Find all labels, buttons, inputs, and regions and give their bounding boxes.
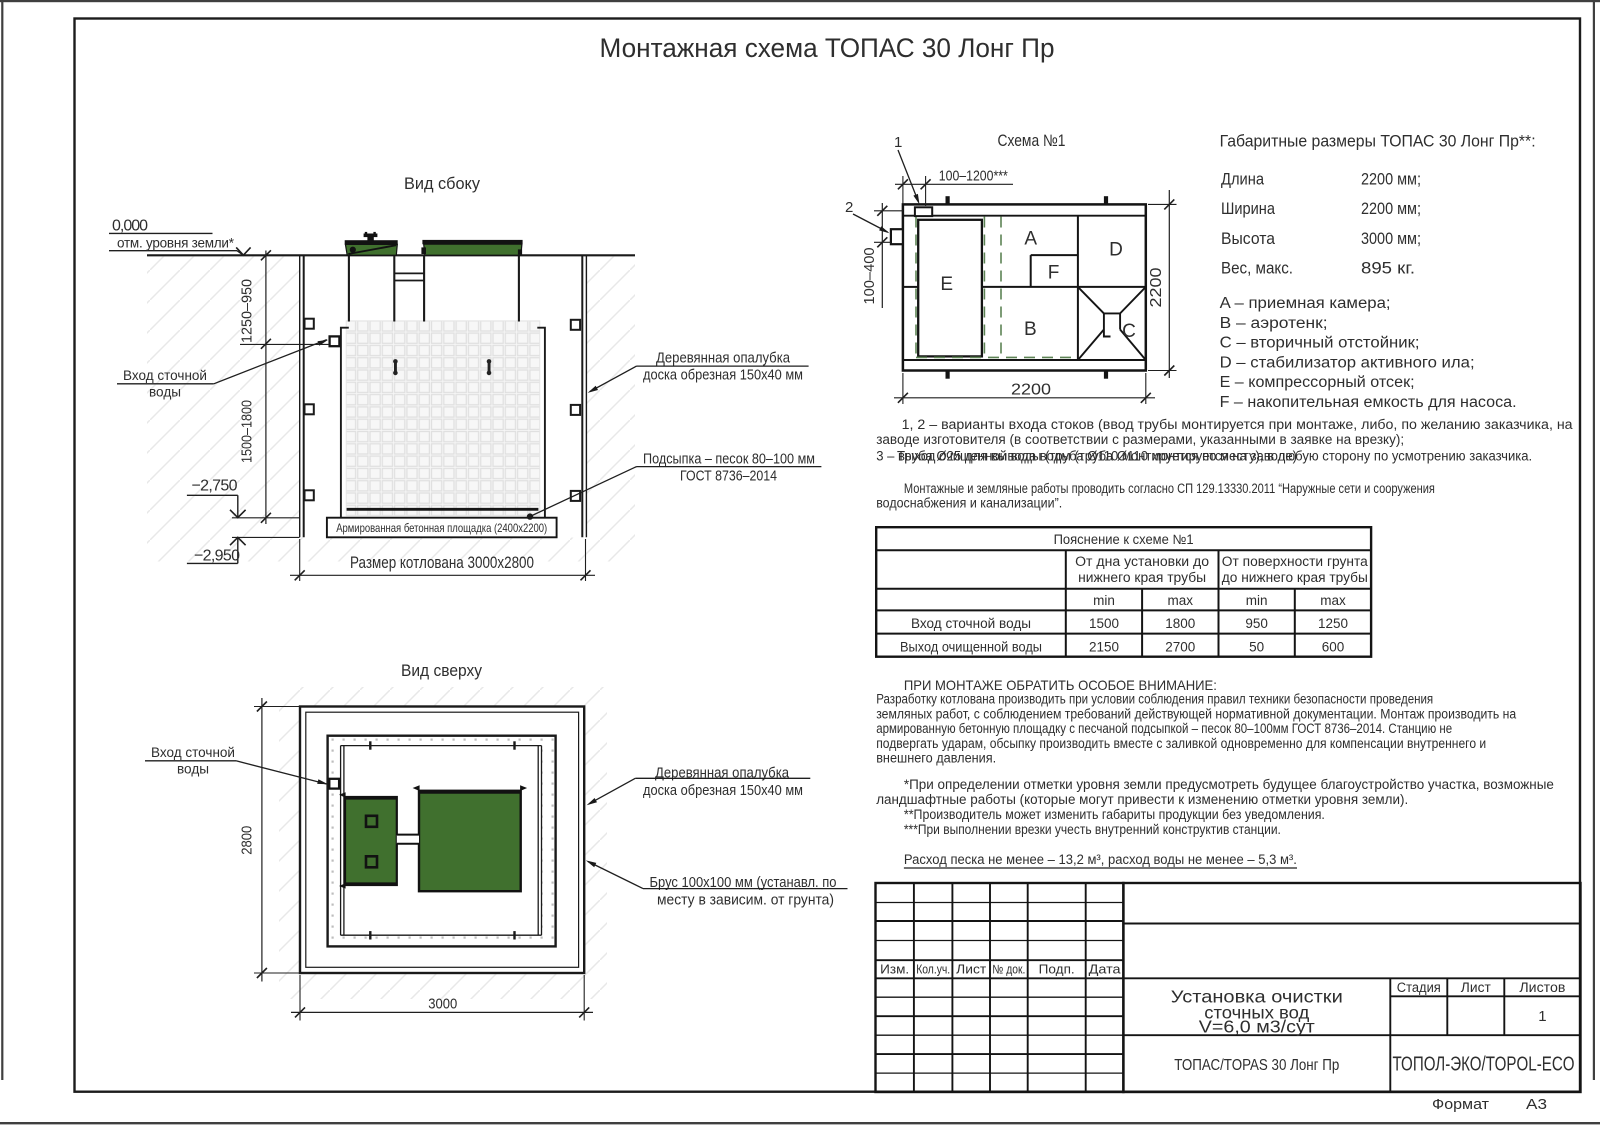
svg-text:3000 мм;: 3000 мм; xyxy=(1361,230,1421,248)
svg-text:1: 1 xyxy=(894,134,902,151)
svg-text:ГОСТ 8736–2014: ГОСТ 8736–2014 xyxy=(680,469,777,485)
svg-text:1, 2 – варианты входа стоков: 1, 2 – варианты входа стоков (ввод трубы… xyxy=(902,417,1574,432)
svg-text:Кол.уч.: Кол.уч. xyxy=(916,963,950,977)
svg-text:0,000: 0,000 xyxy=(112,218,148,235)
svg-text:1: 1 xyxy=(1538,1008,1546,1025)
svg-text:E – компрессорный отсек;: E – компрессорный отсек; xyxy=(1220,374,1415,391)
svg-text:50: 50 xyxy=(1249,640,1264,655)
svg-text:ТОПАС/TOPAS 30 Лонг Пр: ТОПАС/TOPAS 30 Лонг Пр xyxy=(1174,1057,1339,1074)
svg-text:доска обрезная 150х40 мм: доска обрезная 150х40 мм xyxy=(643,783,803,799)
svg-text:Высота: Высота xyxy=(1221,230,1276,248)
svg-text:C: C xyxy=(1122,321,1136,342)
svg-text:1500–1800: 1500–1800 xyxy=(240,400,256,463)
svg-text:заводе изготовителя (в соответ: заводе изготовителя (в соответствии с ра… xyxy=(876,432,1404,447)
svg-text:B: B xyxy=(1024,319,1037,340)
svg-text:Лист: Лист xyxy=(1461,980,1491,995)
svg-text:Разработку котлована производи: Разработку котлована производить при усл… xyxy=(876,692,1433,707)
svg-text:1250–950: 1250–950 xyxy=(240,279,256,343)
svg-text:Лист: Лист xyxy=(956,963,986,977)
svg-text:A – приемная камера;: A – приемная камера; xyxy=(1220,295,1391,312)
svg-text:2200: 2200 xyxy=(1148,267,1165,307)
svg-text:Вид сбоку: Вид сбоку xyxy=(404,175,481,193)
svg-text:A: A xyxy=(1024,229,1037,250)
svg-text:2200 мм;: 2200 мм; xyxy=(1361,171,1421,189)
svg-text:min: min xyxy=(1093,593,1115,608)
svg-text:Изм.: Изм. xyxy=(880,963,909,977)
svg-text:Листов: Листов xyxy=(1519,980,1565,995)
svg-text:−2,950: −2,950 xyxy=(194,548,240,565)
svg-text:Длина: Длина xyxy=(1221,171,1265,189)
svg-text:2150: 2150 xyxy=(1089,640,1119,655)
svg-text:Ширина: Ширина xyxy=(1221,200,1276,218)
svg-text:Вход сточной воды: Вход сточной воды xyxy=(911,616,1031,631)
svg-text:Схема №1: Схема №1 xyxy=(998,132,1066,150)
svg-text:1500: 1500 xyxy=(1089,616,1119,631)
svg-text:Армированная бетонная площадка: Армированная бетонная площадка (2400х220… xyxy=(336,521,547,535)
svg-text:2700: 2700 xyxy=(1165,640,1195,655)
svg-text:max: max xyxy=(1168,593,1194,608)
svg-text:950: 950 xyxy=(1245,616,1268,631)
svg-text:F: F xyxy=(1048,263,1060,284)
svg-text:Дата: Дата xyxy=(1089,963,1121,977)
svg-text:D: D xyxy=(1109,240,1123,261)
svg-text:min: min xyxy=(1246,593,1268,608)
svg-text:***При выполнении врезки учест: ***При выполнении врезки учесть внутренн… xyxy=(904,822,1281,837)
svg-text:водоснабжения и канализации”.: водоснабжения и канализации”. xyxy=(876,496,1062,511)
svg-text:Вес, макс.: Вес, макс. xyxy=(1221,260,1293,278)
svg-text:2200 мм;: 2200 мм; xyxy=(1361,200,1421,218)
svg-text:ландшафтные работы (которые мо: ландшафтные работы (которые могут привес… xyxy=(876,792,1408,807)
svg-text:*При определении отметки уровн: *При определении отметки уровня земли пр… xyxy=(904,777,1554,792)
svg-text:Деревянная опалубка: Деревянная опалубка xyxy=(656,351,791,367)
svg-text:Расход песка не менее – 13,2 м: Расход песка не менее – 13,2 м³, расход … xyxy=(904,852,1297,867)
svg-text:Стадия: Стадия xyxy=(1397,980,1441,995)
svg-text:1800: 1800 xyxy=(1165,616,1195,631)
svg-text:Вид сверху: Вид сверху xyxy=(401,662,483,680)
svg-text:2800: 2800 xyxy=(239,826,256,855)
svg-text:ТОПОЛ-ЭКО/TOPOL-ECO: ТОПОЛ-ЭКО/TOPOL-ECO xyxy=(1393,1054,1575,1076)
svg-text:Вход сточной: Вход сточной xyxy=(123,368,207,383)
svg-text:**Производитель может изменить: **Производитель может изменить габариты … xyxy=(904,807,1325,822)
svg-text:100–400: 100–400 xyxy=(861,248,878,305)
svg-text:E: E xyxy=(940,274,953,295)
svg-text:Монтажные и земляные работы пр: Монтажные и земляные работы проводить со… xyxy=(904,481,1435,496)
svg-text:1250: 1250 xyxy=(1318,616,1348,631)
svg-text:Размер котлована 3000х2800: Размер котлована 3000х2800 xyxy=(350,554,534,572)
svg-text:100–1200***: 100–1200*** xyxy=(939,168,1008,185)
svg-text:нижнего края трубы: нижнего края трубы xyxy=(1078,570,1206,585)
svg-text:B – аэротенк;: B – аэротенк; xyxy=(1220,315,1328,332)
svg-text:600: 600 xyxy=(1322,640,1345,655)
svg-text:Монтажная схема ТОПАС 30 Лонг: Монтажная схема ТОПАС 30 Лонг Пр xyxy=(600,33,1055,63)
svg-text:до нижнего края трубы: до нижнего края трубы xyxy=(1222,570,1368,585)
svg-text:От поверхности грунта: От поверхности грунта xyxy=(1222,554,1368,569)
svg-text:3 – выход очищенной воды (труб: 3 – выход очищенной воды (труба Ø110 мон… xyxy=(876,449,1532,464)
svg-text:max: max xyxy=(1320,593,1346,608)
svg-text:F – накопительная емкость для: F – накопительная емкость для насоса. xyxy=(1220,394,1517,411)
svg-text:Подсыпка – песок 80–100 мм: Подсыпка – песок 80–100 мм xyxy=(643,452,815,468)
svg-text:2200: 2200 xyxy=(1011,382,1051,399)
svg-text:D – стабилизатор активного ила: D – стабилизатор активного ила; xyxy=(1220,354,1475,371)
svg-text:От дна установки до: От дна установки до xyxy=(1075,554,1209,569)
svg-text:месту в зависим. от грунта): месту в зависим. от грунта) xyxy=(657,893,834,909)
svg-text:2: 2 xyxy=(845,199,853,216)
svg-text:Деревянная опалубка: Деревянная опалубка xyxy=(655,766,790,782)
svg-text:Пояснение к схеме №1: Пояснение к схеме №1 xyxy=(1054,532,1194,547)
svg-text:А3: А3 xyxy=(1526,1097,1547,1113)
svg-text:внешнего давления.: внешнего давления. xyxy=(876,751,996,766)
svg-text:доска обрезная 150х40 мм: доска обрезная 150х40 мм xyxy=(643,368,803,384)
svg-text:воды: воды xyxy=(149,385,181,400)
svg-text:воды: воды xyxy=(177,762,209,777)
svg-text:Габаритные размеры ТОПАС 30 Ло: Габаритные размеры ТОПАС 30 Лонг Пр**: xyxy=(1220,132,1536,151)
svg-text:3000: 3000 xyxy=(428,995,457,1012)
svg-text:армированную бетонную площадку: армированную бетонную площадку с песчано… xyxy=(876,721,1452,736)
svg-text:C – вторичный отстойник;: C – вторичный отстойник; xyxy=(1220,335,1420,352)
svg-text:895 кг.: 895 кг. xyxy=(1361,260,1415,278)
svg-text:V=6,0 м3/сут: V=6,0 м3/сут xyxy=(1199,1017,1315,1037)
svg-text:Подп.: Подп. xyxy=(1039,963,1075,977)
svg-text:Формат: Формат xyxy=(1432,1097,1489,1113)
svg-text:Выход очищенной воды: Выход очищенной воды xyxy=(900,640,1042,655)
svg-text:Вход сточной: Вход сточной xyxy=(151,745,235,760)
svg-text:земляных работ, с соблюдением: земляных работ, с соблюдением требований… xyxy=(876,706,1516,721)
svg-text:№ док.: № док. xyxy=(992,963,1025,977)
svg-text:−2,750: −2,750 xyxy=(192,478,238,495)
svg-text:отм. уровня земли*: отм. уровня земли* xyxy=(117,236,235,251)
svg-text:подвергать ударам, обсыпку про: подвергать ударам, обсыпку производить в… xyxy=(876,736,1486,751)
